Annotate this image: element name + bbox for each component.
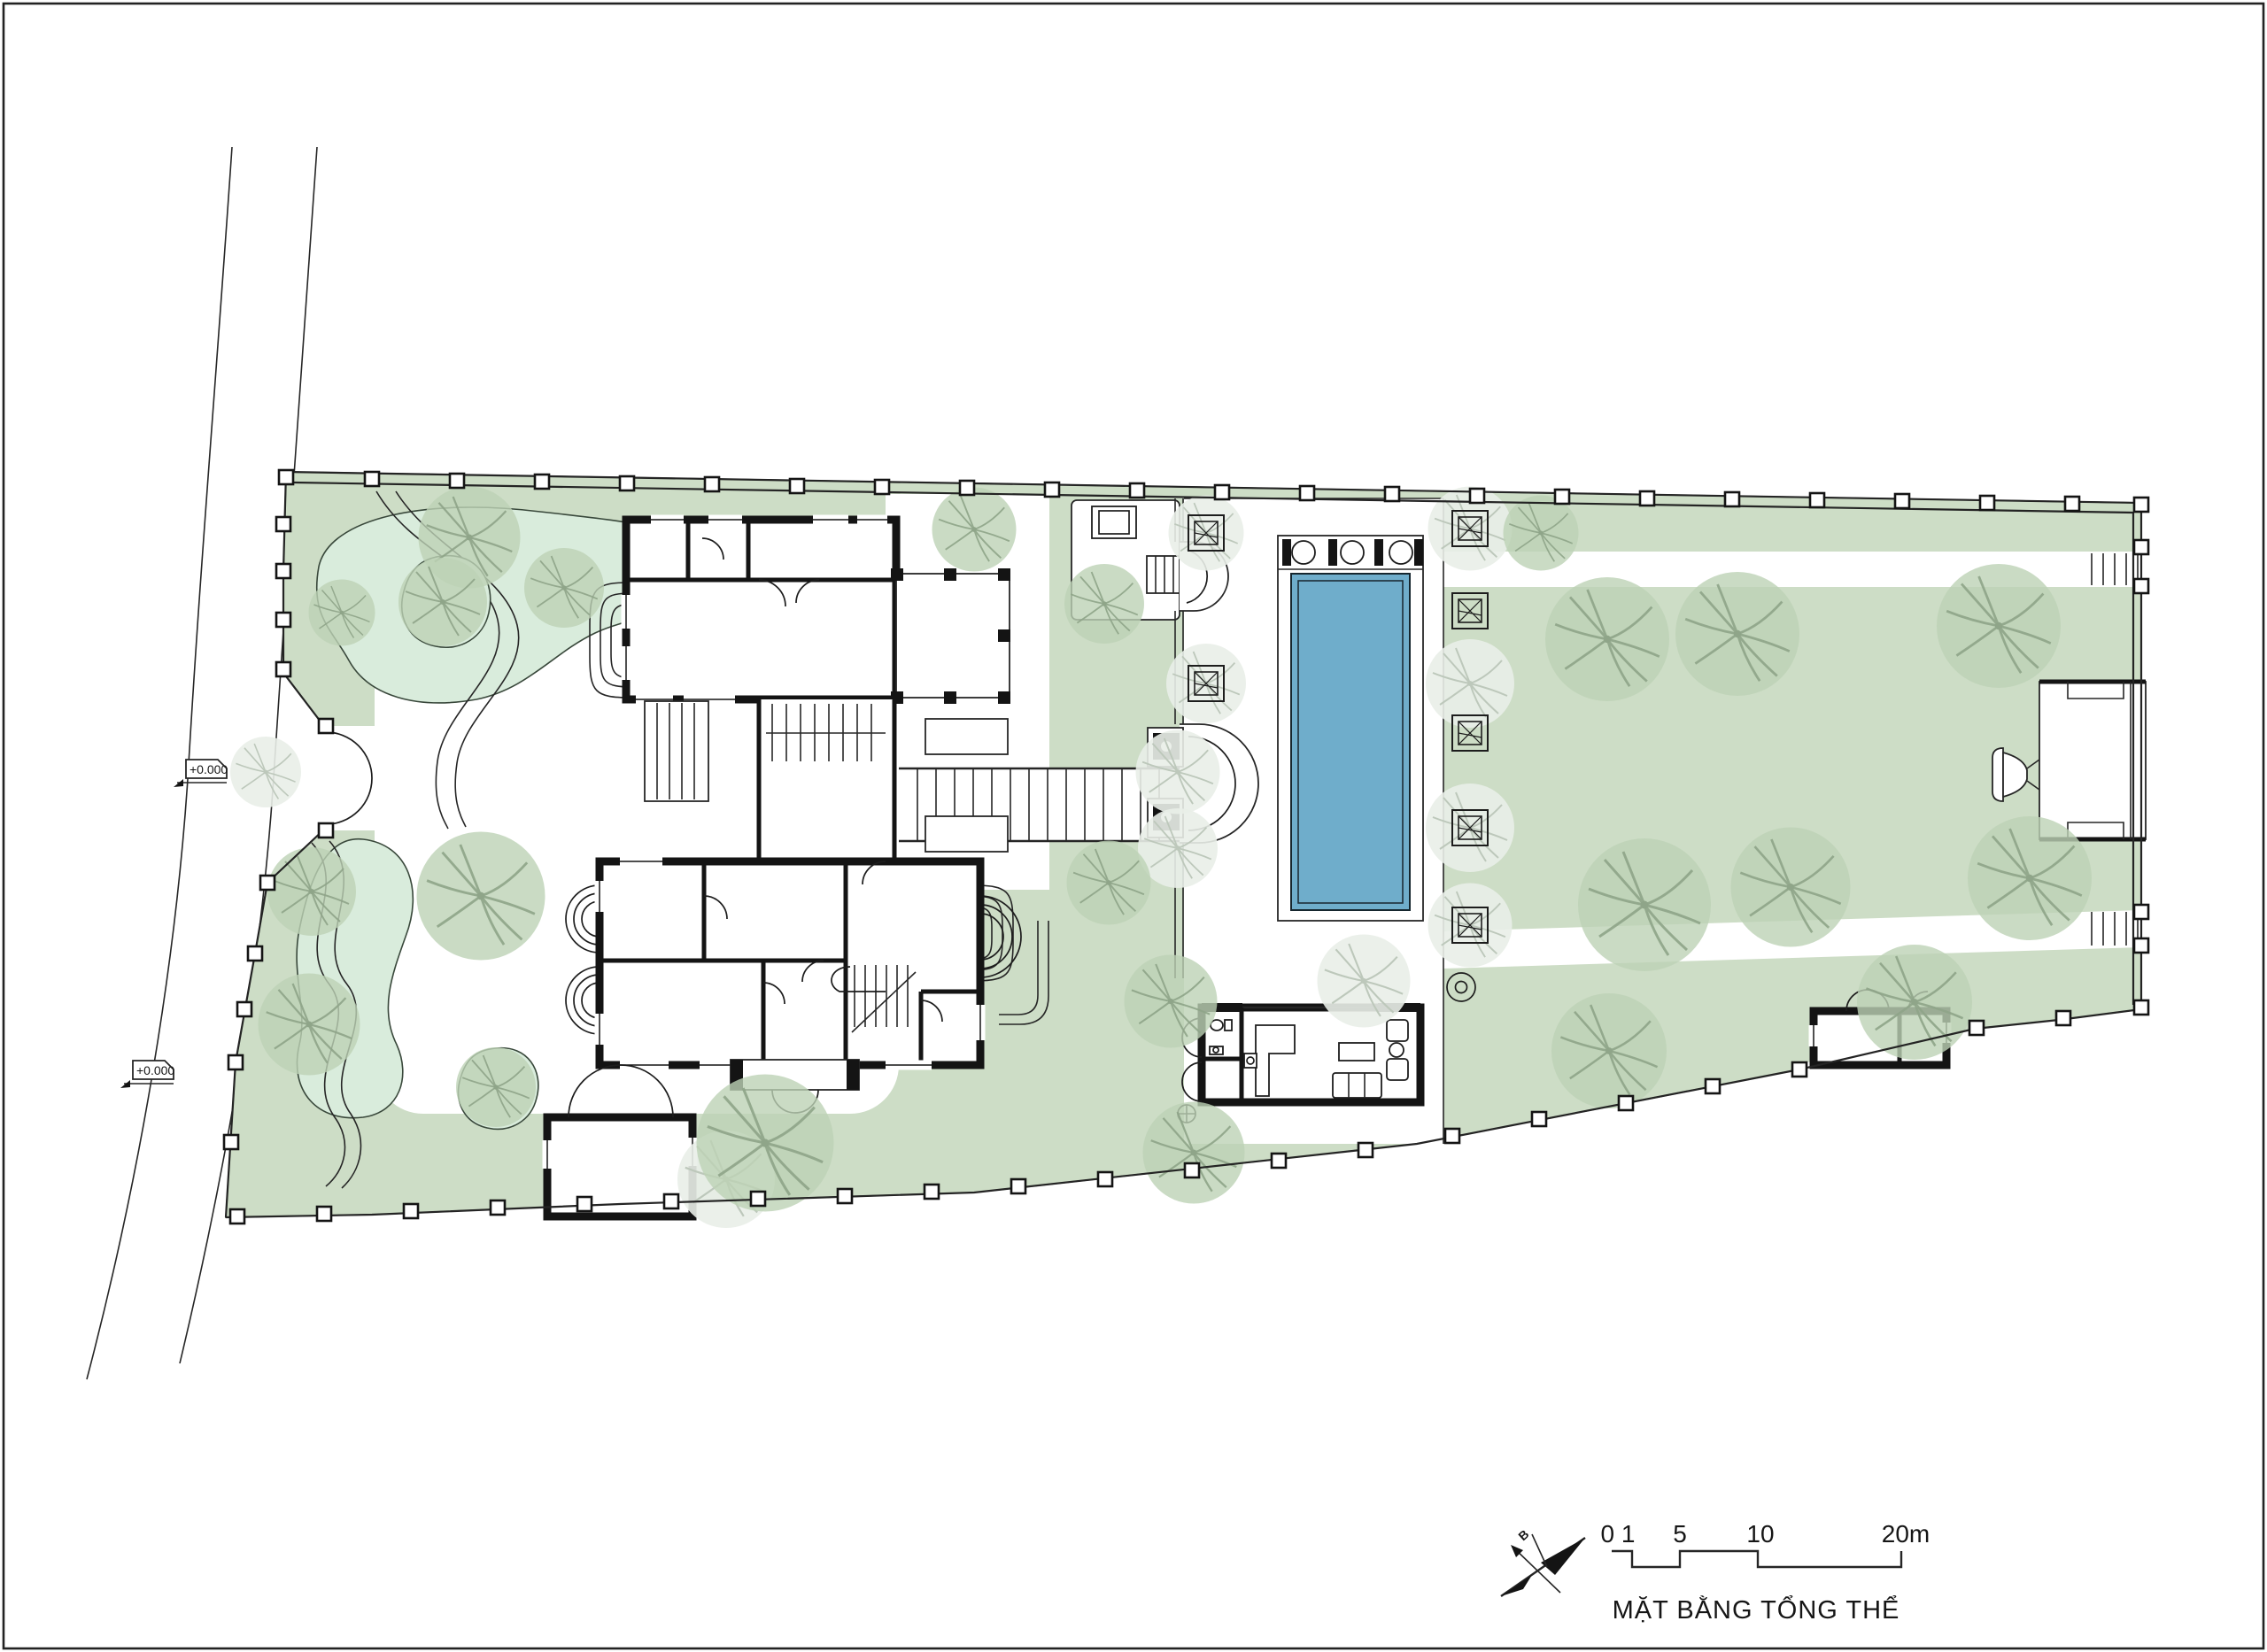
garden-platform — [2039, 682, 2146, 839]
walkway-planter-north — [925, 719, 1008, 754]
pool-light — [1389, 541, 1412, 564]
exterior-steps — [645, 701, 708, 801]
patio-steps — [1147, 556, 1180, 593]
elevation-label: +0.000 — [136, 1063, 174, 1077]
toilet-icon — [1211, 1020, 1232, 1031]
elevation-label: +0.000 — [190, 762, 228, 776]
scale-tick-0: 0 1 — [1601, 1520, 1636, 1548]
side-table — [1389, 1043, 1404, 1057]
porch — [891, 568, 1010, 704]
scale-tick-5: 5 — [1673, 1520, 1687, 1548]
armchair — [1387, 1059, 1408, 1080]
sofa — [1333, 1073, 1381, 1098]
drawing-title: MẶT BẰNG TỔNG THỂ — [1613, 1594, 1900, 1625]
pool-light — [1341, 541, 1364, 564]
gate-walk — [312, 726, 386, 830]
scale-tick-20: 20m — [1882, 1520, 1930, 1548]
scale-tick-10: 10 — [1746, 1520, 1774, 1548]
sink-icon — [1210, 1046, 1223, 1054]
armchair — [1387, 1020, 1408, 1041]
walkway-planter-south — [925, 816, 1008, 852]
coffee-table — [1339, 1043, 1374, 1061]
site-plan-drawing: +0.000 +0.000 B 0 1 5 10 20m MẶT BẰNG TỔ… — [0, 0, 2267, 1652]
site-plan-sheet: +0.000 +0.000 B 0 1 5 10 20m MẶT BẰNG TỔ… — [0, 0, 2267, 1652]
stove — [1244, 1054, 1257, 1068]
swimming-pool — [1278, 536, 1423, 921]
pool-light — [1292, 541, 1315, 564]
pool-water — [1291, 574, 1410, 910]
